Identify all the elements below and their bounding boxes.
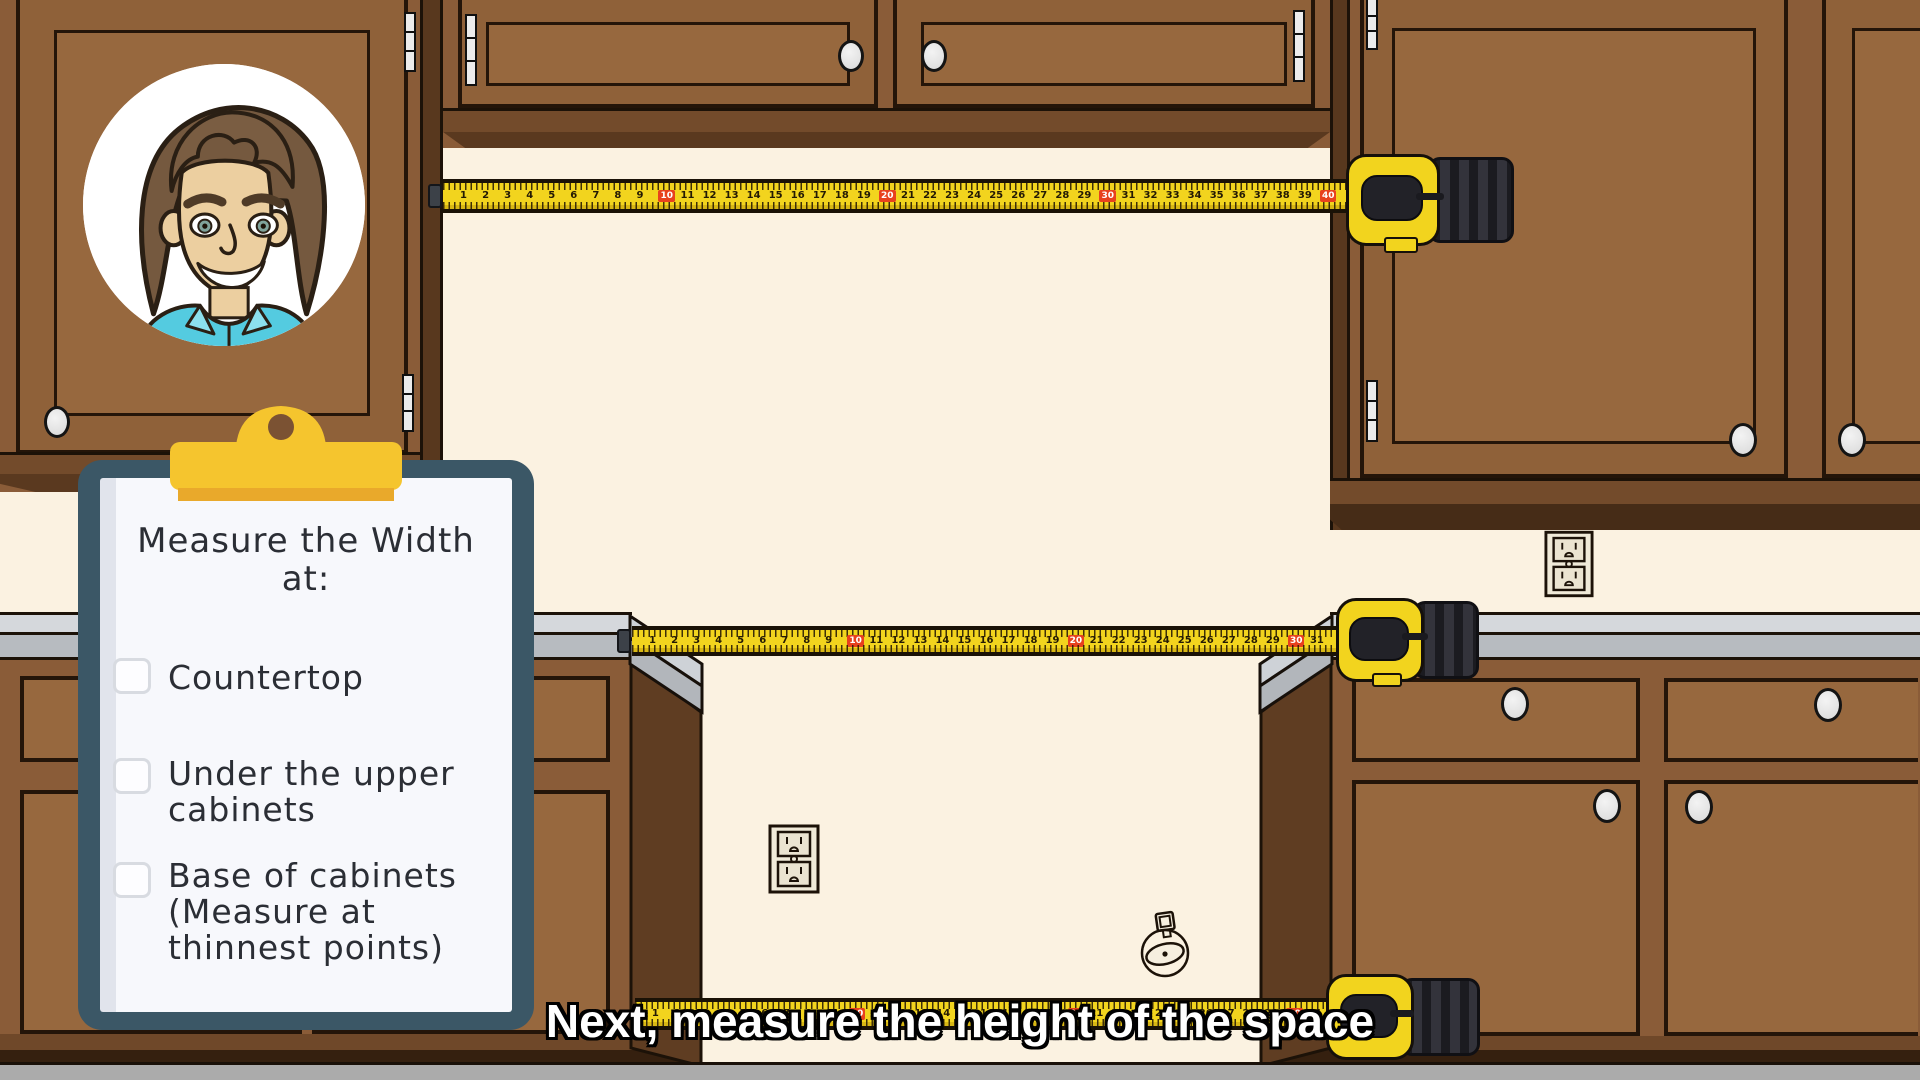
cabinet-door (1822, 0, 1920, 478)
kitchen-scene: 1234567891011121314151617181920212223242… (0, 0, 1920, 1080)
tape-mark: 29 (1266, 635, 1280, 647)
checklist-item-label: Under the upper cabinets (168, 756, 508, 828)
cabinet-knob (44, 406, 70, 438)
tape-mark-red: 30 (1288, 635, 1305, 647)
tape-mark: 38 (1276, 190, 1290, 202)
tape-mark: 22 (923, 190, 937, 202)
tape-mark: 12 (891, 635, 905, 647)
cabinet-door (458, 0, 878, 108)
cabinet-knob (1685, 790, 1713, 824)
tape-mark: 23 (945, 190, 959, 202)
tape-mark: 34 (1188, 190, 1202, 202)
cabinet-side-panel (1330, 0, 1350, 530)
tape-mark: 2 (482, 190, 489, 202)
cabinet-door (893, 0, 1315, 108)
cabinet-knob (1838, 423, 1866, 457)
presenter-avatar (83, 64, 365, 346)
tape-mark: 7 (781, 635, 788, 647)
hinge-icon (1366, 380, 1378, 442)
floor (0, 1062, 1920, 1080)
tape-mark: 9 (825, 635, 832, 647)
tape-mark-red: 10 (658, 190, 675, 202)
hinge-icon (1366, 0, 1378, 50)
tape-mark: 11 (681, 190, 695, 202)
tape-mark: 8 (803, 635, 810, 647)
clipboard-clip-icon (160, 398, 410, 508)
tape-mark: 13 (913, 635, 927, 647)
tape-mark: 15 (957, 635, 971, 647)
tape-measure-blade: 1234567891011121314151617181920212223242… (443, 179, 1347, 213)
checklist-title-line: Measure the Width (100, 522, 512, 560)
tape-mark: 26 (1200, 635, 1214, 647)
tape-mark: 11 (869, 635, 883, 647)
tape-mark-red: 30 (1099, 190, 1116, 202)
tape-mark: 21 (1090, 635, 1104, 647)
tape-mark: 25 (989, 190, 1003, 202)
tape-mark: 24 (1156, 635, 1170, 647)
tape-mark: 15 (769, 190, 783, 202)
tape-mark: 31 (1122, 190, 1136, 202)
tape-measure-housing (1336, 596, 1476, 688)
tape-mark: 4 (715, 635, 722, 647)
cabinet-knob (838, 40, 864, 72)
tape-measure-blade: 1234567891011121314151617181920212223242… (632, 626, 1337, 656)
drawer-knob (1501, 687, 1529, 721)
power-outlet-icon (768, 824, 820, 894)
tape-mark: 19 (1046, 635, 1060, 647)
checklist-title-suffix: at: (100, 560, 512, 598)
tape-mark: 22 (1112, 635, 1126, 647)
tape-mark: 1 (460, 190, 467, 202)
drawer-knob (1814, 688, 1842, 722)
tape-mark: 5 (548, 190, 555, 202)
caption-subtitle: Next, measure the height of the space (546, 994, 1374, 1048)
tape-hook (428, 184, 442, 208)
tape-mark: 28 (1055, 190, 1069, 202)
upper-cabinet-middle (443, 0, 1330, 148)
tape-mark-red: 20 (879, 190, 896, 202)
tape-mark: 12 (703, 190, 717, 202)
hinge-icon (465, 14, 477, 86)
tape-mark: 8 (614, 190, 621, 202)
tape-mark: 23 (1134, 635, 1148, 647)
tape-mark: 18 (835, 190, 849, 202)
checkbox-under-upper-cabinets[interactable] (113, 758, 151, 794)
tape-mark: 6 (570, 190, 577, 202)
checkbox-base-of-cabinets[interactable] (113, 862, 151, 898)
tape-mark-red: 10 (847, 635, 864, 647)
tape-mark: 3 (693, 635, 700, 647)
checkbox-countertop[interactable] (113, 658, 151, 694)
presenter-avatar-drawing (83, 64, 365, 346)
tape-mark: 32 (1144, 190, 1158, 202)
cabinet-bottom-rail (443, 108, 1330, 132)
cabinet-knob (921, 40, 947, 72)
tape-mark: 24 (967, 190, 981, 202)
tape-mark: 17 (1002, 635, 1016, 647)
hinge-icon (1293, 10, 1305, 82)
tape-mark: 21 (901, 190, 915, 202)
tape-mark: 35 (1210, 190, 1224, 202)
drawer-front (1352, 678, 1640, 762)
checklist-item-label: Base of cabinets (Measure at thinnest po… (168, 858, 508, 966)
cabinet-knob (1729, 423, 1757, 457)
tape-mark: 36 (1232, 190, 1246, 202)
tape-mark: 16 (980, 635, 994, 647)
tape-measure-housing (1346, 152, 1512, 252)
cabinet-side-panel (420, 0, 443, 492)
tape-mark: 5 (737, 635, 744, 647)
tape-hook (617, 629, 631, 653)
tape-mark: 37 (1254, 190, 1268, 202)
tape-mark: 13 (725, 190, 739, 202)
tape-mark: 29 (1077, 190, 1091, 202)
upper-cabinet-right (1330, 0, 1920, 530)
power-outlet-icon (1544, 530, 1594, 598)
tape-mark: 16 (791, 190, 805, 202)
tape-mark-red: 20 (1068, 635, 1085, 647)
tape-mark: 39 (1298, 190, 1312, 202)
cabinet-underside (1330, 504, 1920, 530)
tape-mark: 3 (504, 190, 511, 202)
tape-mark: 27 (1222, 635, 1236, 647)
tape-mark: 17 (813, 190, 827, 202)
tape-mark: 1 (649, 635, 656, 647)
tape-mark: 14 (747, 190, 761, 202)
tape-mark-red: 40 (1320, 190, 1337, 202)
tape-mark: 14 (935, 635, 949, 647)
tape-mark: 18 (1024, 635, 1038, 647)
tape-mark: 25 (1178, 635, 1192, 647)
checklist-title: Measure the Width at: (100, 522, 512, 598)
hinge-icon (404, 12, 416, 72)
tape-mark: 4 (526, 190, 533, 202)
tape-mark: 31 (1310, 635, 1324, 647)
tape-mark: 28 (1244, 635, 1258, 647)
gas-connection-icon (1134, 910, 1196, 980)
tape-mark: 9 (636, 190, 643, 202)
cabinet-knob (1593, 789, 1621, 823)
tape-mark: 19 (857, 190, 871, 202)
drawer-front (1664, 678, 1918, 762)
tape-mark: 33 (1166, 190, 1180, 202)
tape-mark: 7 (592, 190, 599, 202)
cabinet-underside (443, 132, 1330, 148)
tape-mark: 27 (1033, 190, 1047, 202)
checklist-item-label: Countertop (168, 660, 498, 696)
tape-mark: 26 (1011, 190, 1025, 202)
tape-mark: 2 (671, 635, 678, 647)
cabinet-bottom-rail (1330, 478, 1920, 504)
tape-mark: 6 (759, 635, 766, 647)
